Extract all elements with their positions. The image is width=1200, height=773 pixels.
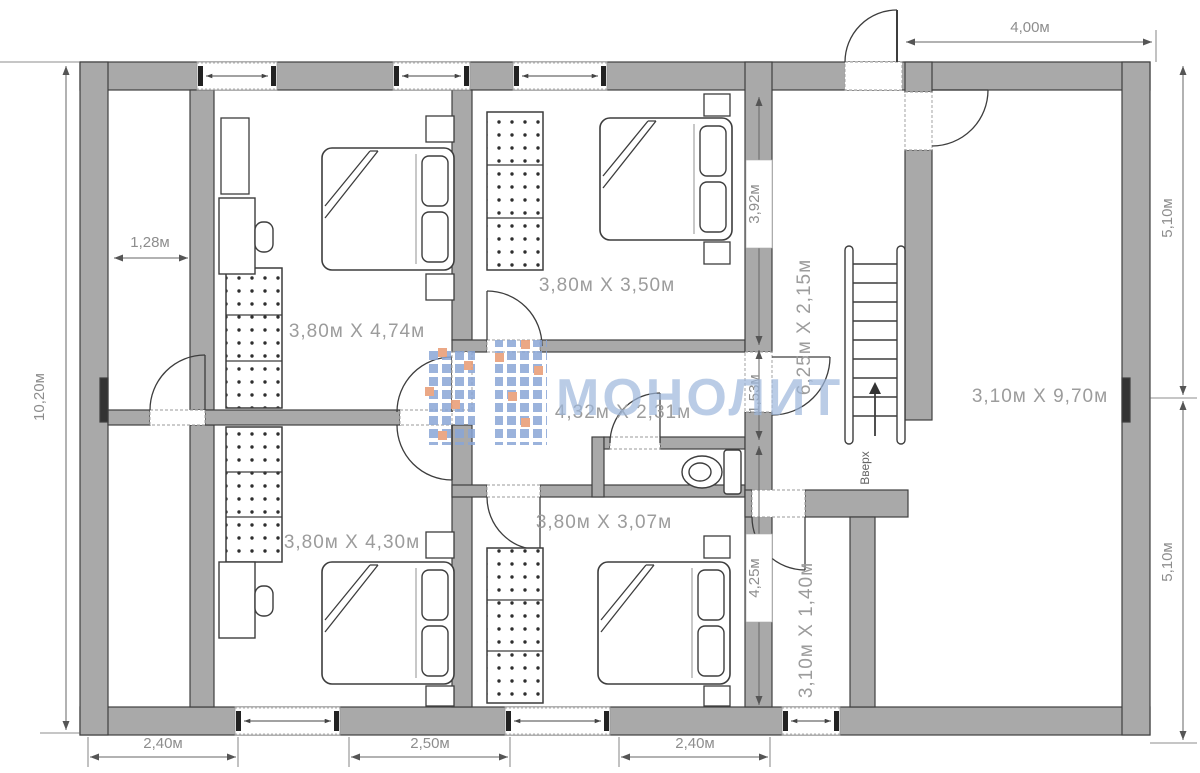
wardrobe-icon [226, 427, 282, 562]
dim-right-lower: 5,10м [1159, 542, 1176, 582]
wardrobe-icon [226, 268, 282, 408]
watermark-text: МОНОЛИТ [556, 369, 843, 427]
floor-plan-page: 4,00м 10,20м 1,28м 3,92м 1,53м 4,25м 5,1… [0, 0, 1200, 773]
dim-closet-width: 1,28м [130, 234, 170, 251]
bed-icon [598, 562, 730, 684]
wardrobe-icon [487, 548, 543, 703]
room-label-living-room: 3,10м X 9,70м [972, 386, 1108, 407]
room-label-bedroom-top-left: 3,80м X 4,74м [289, 321, 425, 342]
dim-392: 3,92м [746, 184, 763, 224]
bed-icon [322, 562, 454, 684]
stairs-direction-label: Вверх [858, 451, 872, 484]
stairs-icon [845, 246, 905, 444]
cabinet-icon [221, 118, 249, 194]
room-label-bedroom-bottom-left: 3,80м X 4,30м [284, 532, 420, 553]
room-label-entry-room: 3,10м X 1,40м [796, 562, 817, 698]
desk-chair-icon [219, 198, 273, 274]
window-icon [235, 707, 340, 735]
bed-icon [600, 118, 732, 240]
window-icon [393, 62, 470, 90]
monolit-logo [425, 340, 547, 445]
window-icon [197, 62, 277, 90]
window-icon [513, 62, 607, 90]
dim-bottom-middle: 2,50м [410, 735, 450, 752]
room-label-bedroom-top-right: 3,80м X 3,50м [539, 275, 675, 296]
watermark: МОНОЛИТ [425, 340, 843, 445]
floor-plan-svg: 4,00м 10,20м 1,28м 3,92м 1,53м 4,25м 5,1… [0, 0, 1200, 773]
entrance-door-icon [845, 10, 902, 90]
bed-icon [322, 148, 454, 270]
dim-bottom-right: 2,40м [675, 735, 715, 752]
room-label-bedroom-bottom-right: 3,80м X 3,07м [536, 512, 672, 533]
wardrobe-icon [487, 112, 543, 270]
dim-right-upper: 5,10м [1159, 198, 1176, 238]
bedroom-bottom-right-door-icon [487, 485, 540, 550]
window-icon [505, 707, 610, 735]
dim-425: 4,25м [746, 558, 763, 598]
dim-left-total: 10,20м [31, 373, 48, 421]
dim-top: 4,00м [1010, 19, 1050, 36]
dim-bottom-left: 2,40м [143, 735, 183, 752]
desk-chair-icon [219, 562, 273, 638]
living-room-door-icon [905, 90, 988, 150]
window-icon [782, 707, 840, 735]
